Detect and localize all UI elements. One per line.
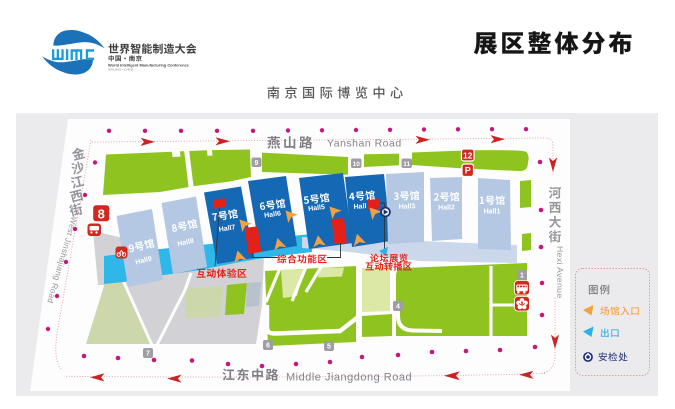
svg-text:Hall2: Hall2 [438, 204, 455, 211]
svg-text:7: 7 [146, 351, 150, 358]
svg-text:Hall1: Hall1 [484, 209, 501, 216]
svg-text:1: 1 [520, 273, 524, 280]
svg-text:8: 8 [98, 207, 105, 222]
svg-text:Hall: Hall [353, 203, 366, 211]
svg-text:P: P [465, 166, 471, 176]
svg-text:6: 6 [266, 343, 270, 350]
svg-text:Middle Jiangdong Road: Middle Jiangdong Road [286, 372, 412, 384]
svg-text:11: 11 [403, 161, 410, 168]
svg-text:NANJING—CHINA: NANJING—CHINA [108, 68, 134, 72]
svg-text:Hall3: Hall3 [399, 203, 416, 211]
svg-text:5: 5 [327, 344, 331, 351]
svg-text:4: 4 [396, 304, 400, 311]
svg-text:12: 12 [463, 151, 473, 161]
svg-text:Yanshan Road: Yanshan Road [327, 138, 402, 150]
svg-text:10: 10 [353, 161, 361, 168]
svg-text:Hexi Avenue: Hexi Avenue [555, 246, 565, 299]
svg-text:9: 9 [255, 160, 259, 167]
